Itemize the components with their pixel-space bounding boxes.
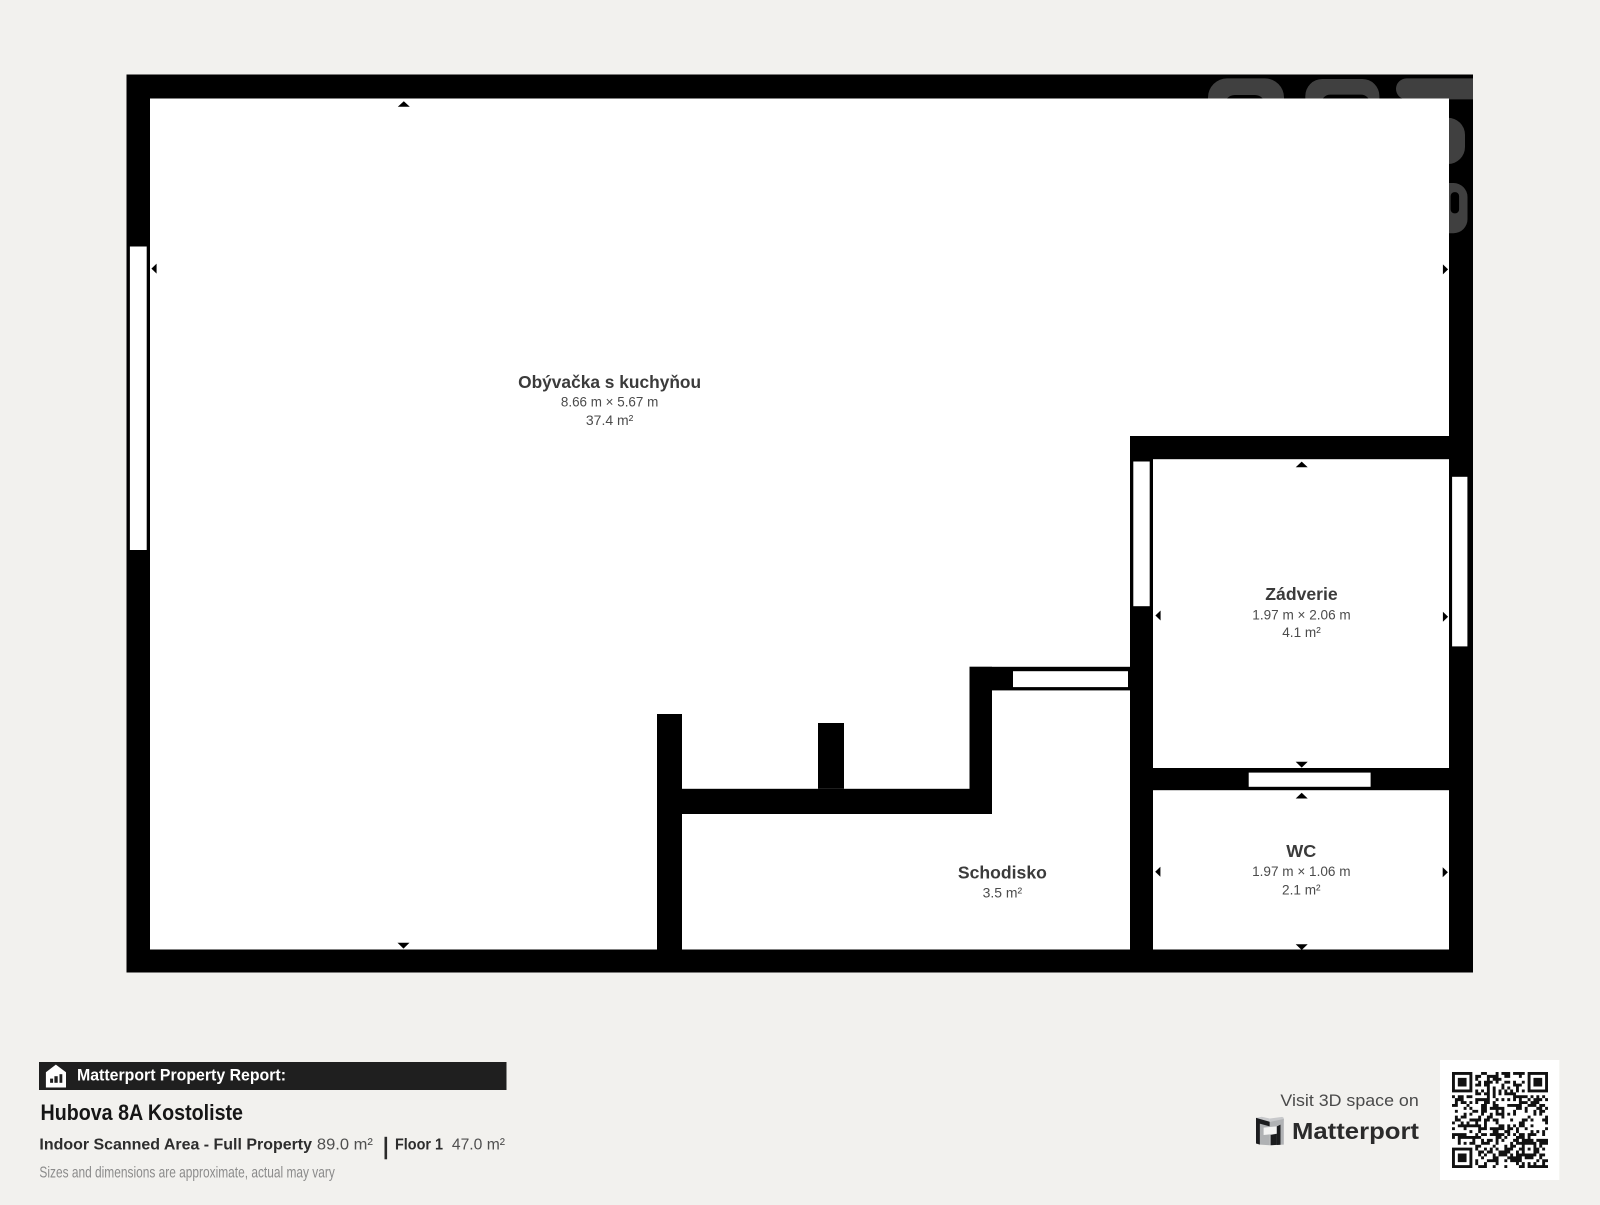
svg-text:Schodisko: Schodisko xyxy=(958,862,1047,882)
svg-text:WC: WC xyxy=(1286,841,1316,861)
svg-text:8.66 m × 5.67 m: 8.66 m × 5.67 m xyxy=(561,395,658,411)
svg-text:Hubova 8A Kostoliste: Hubova 8A Kostoliste xyxy=(41,1100,244,1125)
svg-text:Obývačka s kuchyňou: Obývačka s kuchyňou xyxy=(518,372,701,392)
svg-text:47.0 m²: 47.0 m² xyxy=(452,1136,505,1153)
svg-text:2.1 m²: 2.1 m² xyxy=(1282,882,1321,898)
svg-text:1.97 m × 2.06 m: 1.97 m × 2.06 m xyxy=(1252,608,1350,624)
svg-text:3.5 m²: 3.5 m² xyxy=(983,885,1023,901)
svg-text:89.0 m²: 89.0 m² xyxy=(317,1136,373,1153)
svg-text:Matterport: Matterport xyxy=(1292,1118,1419,1144)
svg-text:Sizes and dimensions are appro: Sizes and dimensions are approximate, ac… xyxy=(39,1164,334,1181)
svg-text:4.1 m²: 4.1 m² xyxy=(1282,625,1321,641)
svg-text:1.97 m × 1.06 m: 1.97 m × 1.06 m xyxy=(1252,864,1350,880)
svg-text:Matterport Property Report:: Matterport Property Report: xyxy=(77,1067,286,1085)
svg-text:Indoor Scanned Area - Full Pro: Indoor Scanned Area - Full Property xyxy=(39,1136,312,1153)
svg-text:Floor 1: Floor 1 xyxy=(395,1136,443,1153)
svg-text:Visit 3D space on: Visit 3D space on xyxy=(1280,1091,1418,1110)
svg-text:Zádverie: Zádverie xyxy=(1265,584,1338,604)
svg-text:37.4 m²: 37.4 m² xyxy=(586,413,634,429)
